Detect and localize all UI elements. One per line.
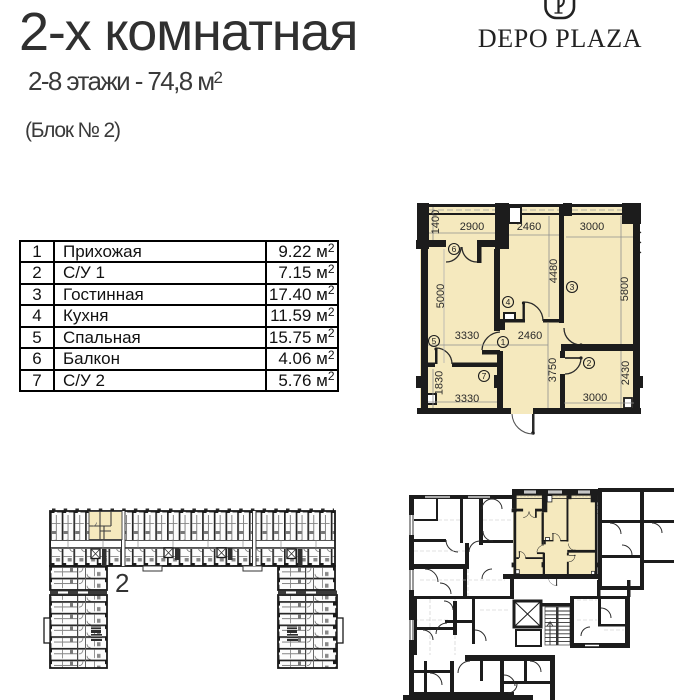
svg-text:3000: 3000 (580, 221, 604, 233)
svg-text:3330: 3330 (455, 393, 479, 405)
svg-text:5800: 5800 (619, 277, 631, 301)
svg-text:4480: 4480 (548, 259, 560, 283)
svg-text:2900: 2900 (460, 221, 484, 233)
svg-text:2: 2 (115, 568, 129, 598)
svg-text:5: 5 (432, 336, 437, 346)
svg-text:2: 2 (587, 358, 592, 368)
svg-text:1830: 1830 (434, 371, 446, 395)
svg-text:1400: 1400 (430, 210, 442, 234)
svg-text:5000: 5000 (435, 284, 447, 308)
svg-text:3330: 3330 (455, 330, 479, 342)
svg-text:3000: 3000 (583, 392, 607, 404)
svg-text:2460: 2460 (517, 221, 541, 233)
svg-text:6: 6 (452, 244, 457, 254)
svg-text:2460: 2460 (518, 330, 542, 342)
svg-text:4: 4 (506, 297, 511, 307)
svg-text:7: 7 (482, 371, 487, 381)
svg-text:DEPO PLAZA: DEPO PLAZA (478, 24, 642, 53)
svg-text:1: 1 (501, 337, 506, 347)
svg-text:3750: 3750 (547, 358, 559, 382)
svg-text:2430: 2430 (620, 361, 632, 385)
svg-text:3: 3 (570, 282, 575, 292)
